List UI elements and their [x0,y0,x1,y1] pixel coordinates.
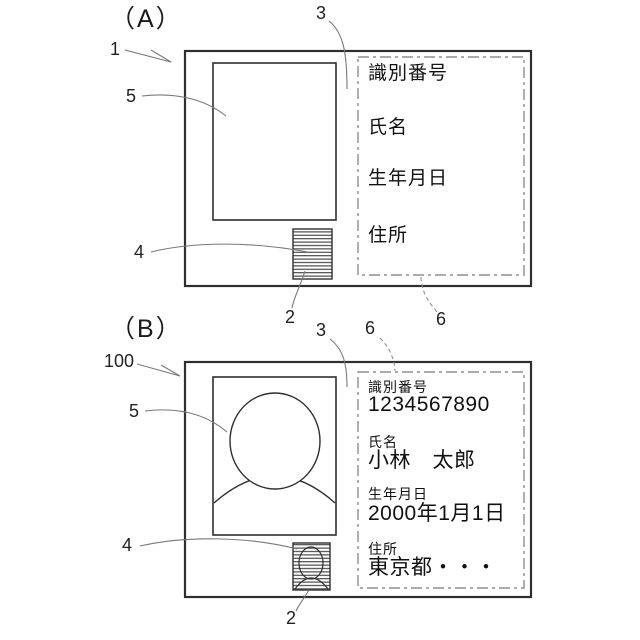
field-label-birthdate-b: 生年月日 [368,487,428,502]
ref-numeral-stamp-region-a: 4 [134,243,144,262]
leader-line-ref1 [125,50,171,62]
leader-line-ref4-b [140,539,297,549]
ref-numeral-print-border-b: 6 [365,319,375,338]
field-value-birthdate-b: 2000年1月1日 [368,503,506,525]
figure-a-label: （A） [110,6,183,32]
ref-numeral-print-area-a: 3 [316,4,326,23]
ref-numeral-stamp-b: 2 [286,609,296,628]
field-value-id-number-b: 1234567890 [368,394,490,416]
photo-frame-a [213,63,336,220]
ref-numeral-stamp-a: 2 [285,308,295,327]
leader-line-ref4-a [151,244,308,252]
leader-line-ref100 [137,364,180,376]
ref-numeral-stamp-region-b: 4 [122,536,132,555]
ref-numeral-card-b: 100 [104,352,134,371]
field-value-address-b: 東京都・・・ [368,557,497,579]
ref-numeral-print-area-b: 3 [316,321,326,340]
field-label-birthdate-a: 生年月日 [368,169,448,189]
ref-numeral-photo-b: 5 [129,402,139,421]
field-label-address-b: 住所 [368,542,398,557]
stamp-area-b-hatched [293,543,330,590]
ref-numeral-print-border-a: 6 [436,310,446,329]
portrait-head [230,393,320,489]
ref-numeral-photo-a: 5 [126,87,136,106]
field-label-name-b: 氏名 [368,435,398,450]
field-value-name-b: 小林 太郎 [368,450,476,472]
leader-line-ref6-a-dashed [421,277,438,313]
ref-numeral-card-a: 1 [110,40,120,59]
figure-b-label: （B） [110,316,183,342]
arrowhead-ref100 [161,365,180,376]
arrowhead-ref1 [151,50,171,62]
leader-line-ref6-b-dashed [380,338,395,371]
field-label-id-number-a: 識別番号 [368,64,448,84]
field-label-name-a: 氏名 [368,118,408,138]
leader-line-ref2-b [296,590,309,611]
leader-line-ref3-a [329,21,347,89]
stamp-area-a-hatched [293,229,332,279]
patent-figure-page: （A） 1 5 4 2 3 6 識別番号 氏名 生年月日 住所 （B） 100 … [0,0,640,640]
field-label-address-a: 住所 [368,226,408,246]
